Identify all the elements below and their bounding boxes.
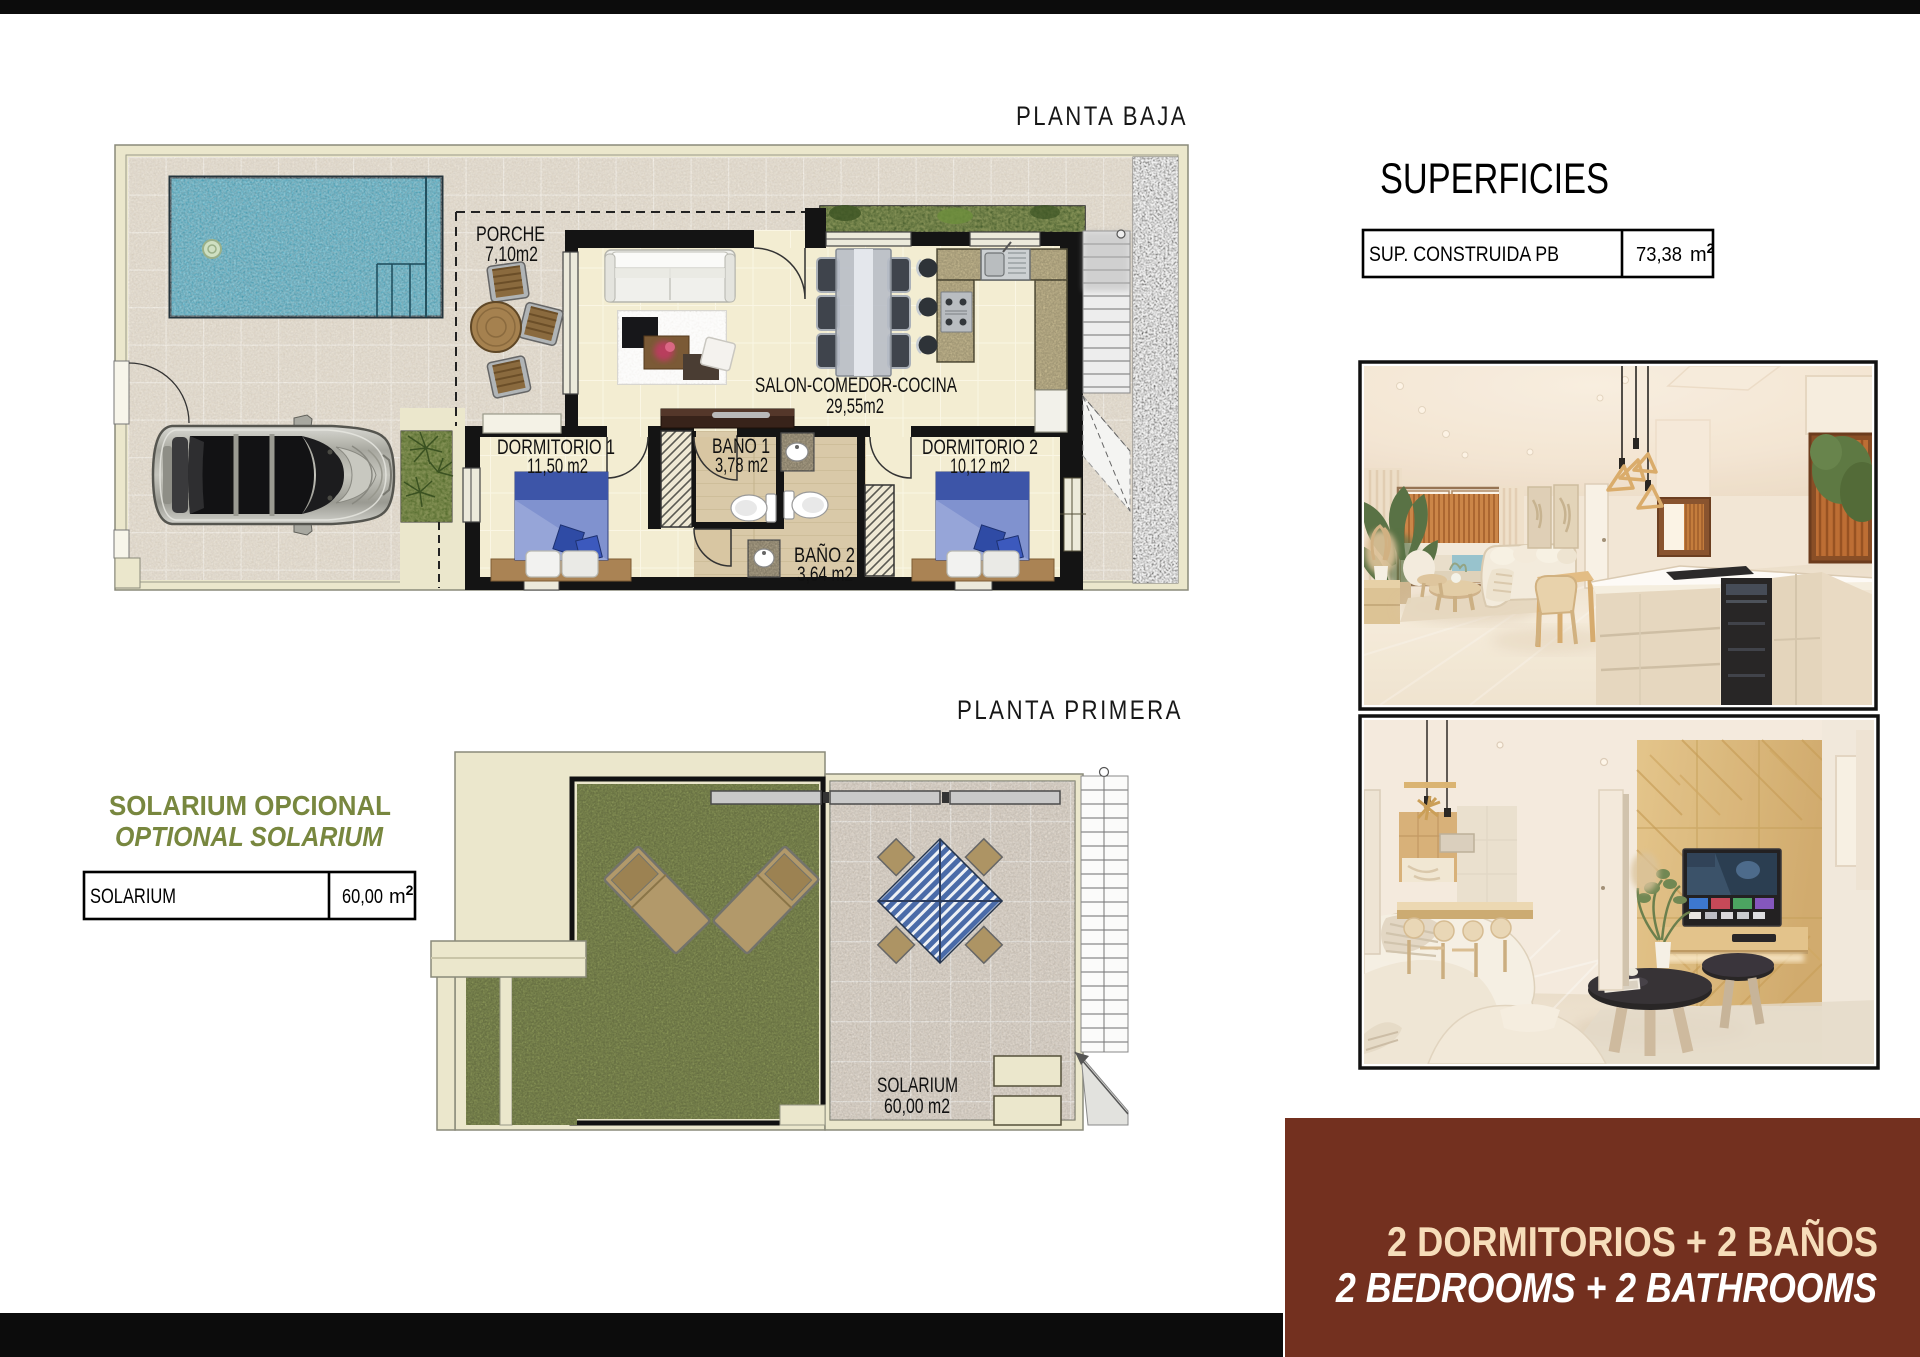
svg-text:7,10m2: 7,10m2 <box>485 243 538 266</box>
svg-text:SUP. CONSTRUIDA PB: SUP. CONSTRUIDA PB <box>1369 243 1559 266</box>
svg-text:73,38m2: 73,38m2 <box>1636 240 1715 266</box>
svg-text:OPTIONAL SOLARIUM: OPTIONAL SOLARIUM <box>115 821 384 852</box>
svg-text:SUPERFICIES: SUPERFICIES <box>1380 155 1609 203</box>
svg-text:PLANTA BAJA: PLANTA BAJA <box>1016 101 1188 131</box>
svg-text:SOLARIUM: SOLARIUM <box>90 885 176 908</box>
svg-text:3,78 m2: 3,78 m2 <box>715 454 768 477</box>
svg-text:SOLARIUM: SOLARIUM <box>877 1074 958 1097</box>
svg-text:60,00m2: 60,00m2 <box>342 882 414 908</box>
svg-text:11,50 m2: 11,50 m2 <box>527 455 588 478</box>
svg-text:PLANTA PRIMERA: PLANTA PRIMERA <box>957 695 1183 725</box>
svg-text:10,12 m2: 10,12 m2 <box>950 455 1010 478</box>
svg-text:2 DORMITORIOS + 2 BAÑOS: 2 DORMITORIOS + 2 BAÑOS <box>1387 1218 1878 1265</box>
svg-text:SOLARIUM OPCIONAL: SOLARIUM OPCIONAL <box>109 790 391 821</box>
svg-text:SALON-COMEDOR-COCINA: SALON-COMEDOR-COCINA <box>755 374 957 397</box>
svg-text:29,55m2: 29,55m2 <box>826 395 884 418</box>
svg-text:60,00 m2: 60,00 m2 <box>884 1095 950 1118</box>
svg-text:3,64 m2: 3,64 m2 <box>797 563 853 586</box>
svg-text:2 BEDROOMS + 2 BATHROOMS: 2 BEDROOMS + 2 BATHROOMS <box>1335 1264 1877 1311</box>
